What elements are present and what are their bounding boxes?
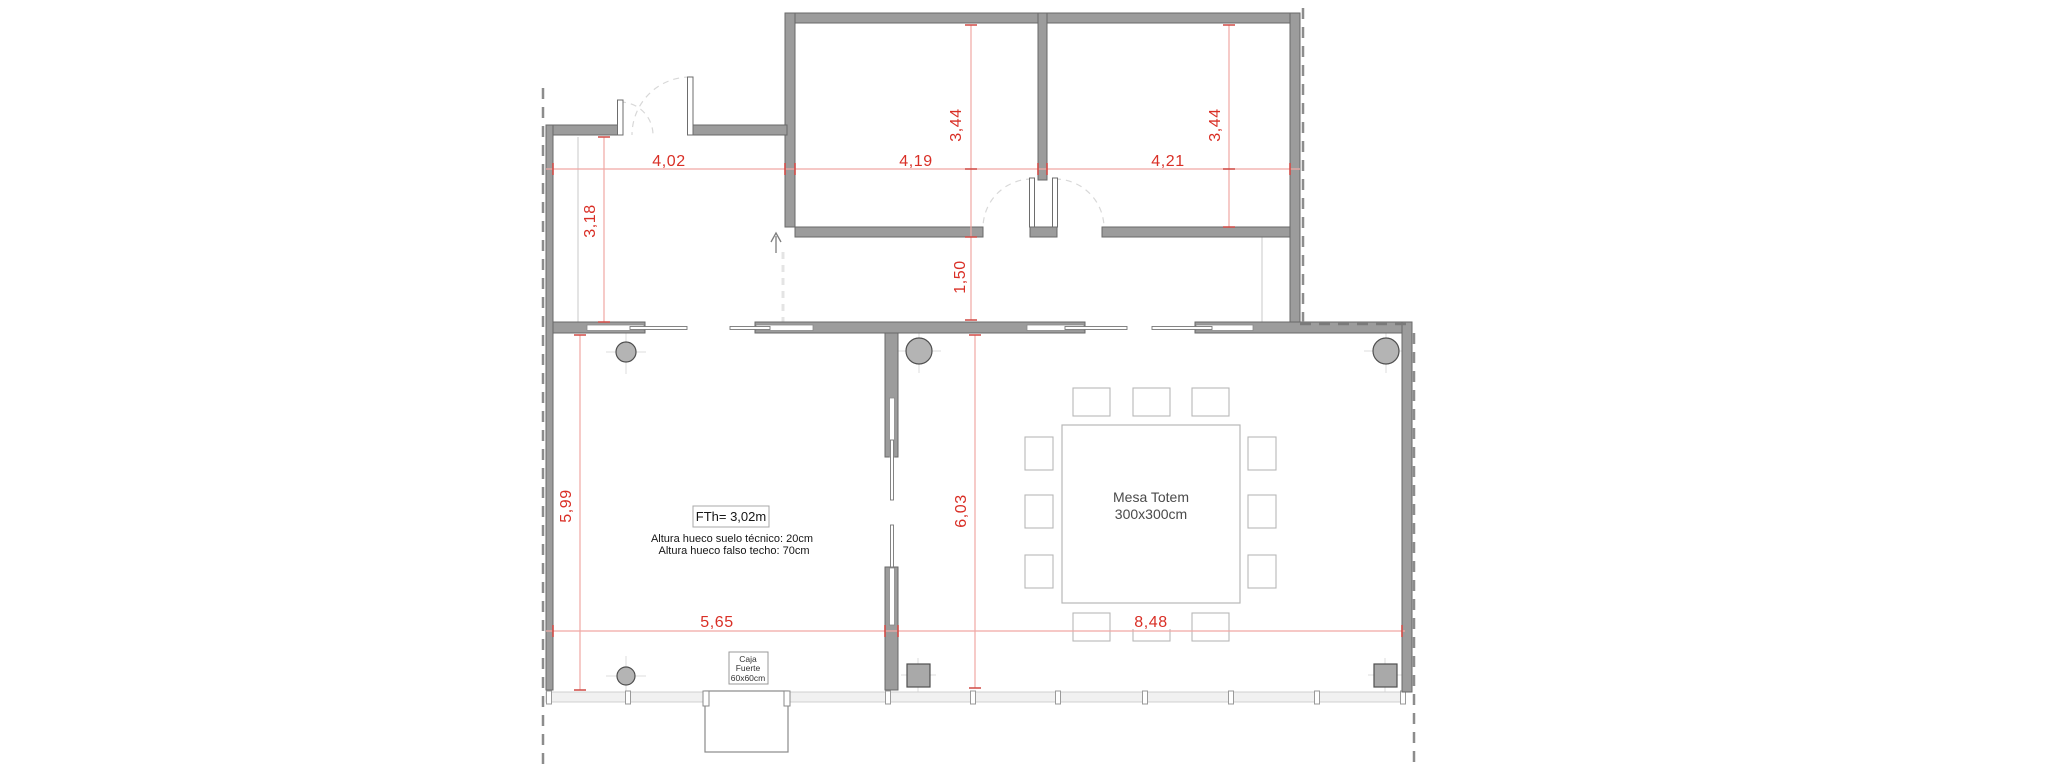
round-column [616,342,636,362]
table-label: Mesa Totem [1113,489,1189,505]
dim-565: 5,65 [700,614,734,631]
door-leaf [688,77,694,135]
door-swing-arc [632,77,690,135]
dim-402: 4,02 [652,153,686,170]
desk [705,691,788,752]
walls [546,13,1412,692]
wall-room-divider [1038,13,1047,180]
dimension-ticks [553,25,1402,690]
dim-150: 1,50 [952,260,969,294]
direction-arrow-icon [771,233,781,253]
chair [1248,437,1276,470]
chair [1248,555,1276,588]
dim-421: 4,21 [1151,153,1185,170]
desk-end [703,691,709,706]
door-swing-arc [983,179,1032,228]
fth-label: FTh= 3,02m [696,509,766,524]
height-annotations: FTh= 3,02m Altura hueco suelo técnico: 2… [651,506,813,557]
chair [1073,388,1110,416]
square-column [907,664,930,687]
ceiling-void-note: Altura hueco falso techo: 70cm [658,545,809,557]
door-post [1030,227,1057,237]
round-column [1373,338,1399,364]
dim-599: 5,99 [558,489,575,523]
chair [1248,495,1276,528]
floor-plan-drawing: Mesa Totem 300x300cm Caja Fuerte 60x60cm… [0,0,2048,768]
door-leaf [1030,178,1035,227]
dim-344-room1: 3,44 [948,108,965,142]
dim-344-room2: 3,44 [1207,108,1224,142]
safe-size-label: 60x60cm [731,673,766,683]
wall-entry-right [693,125,787,135]
desk-end [784,691,790,706]
dim-318: 3,18 [582,204,599,238]
wall-room2-bottom [1102,227,1290,237]
wall-room1-bottom [795,227,983,237]
dim-848: 8,48 [1134,614,1168,631]
door-swing-arc [1055,179,1104,228]
door-leaf [1053,178,1058,227]
floor-void-note: Altura hueco suelo técnico: 20cm [651,533,813,545]
glazed-facade [546,691,1406,704]
dim-419: 4,19 [899,153,933,170]
round-column [906,338,932,364]
site-boundary-dashed [543,8,1414,768]
round-column [617,667,635,685]
square-column [1374,664,1397,687]
wall-left-outer [546,125,553,690]
dimension-lines [546,25,1405,690]
chair [1073,613,1110,641]
wall-room1-left [785,13,795,227]
table-size-label: 300x300cm [1115,506,1187,522]
door-leaf [618,100,624,135]
wall-entry-left [546,125,618,135]
dim-603: 6,03 [953,494,970,528]
chair [1025,437,1053,470]
chair [1025,555,1053,588]
floor-plan-canvas: Mesa Totem 300x300cm Caja Fuerte 60x60cm… [0,0,2048,768]
chair [1133,388,1170,416]
door-swing-arc [620,102,653,135]
chair [1025,495,1053,528]
wall-room2-right [1290,13,1300,333]
chair [1192,613,1229,641]
meeting-area: Mesa Totem 300x300cm [1025,388,1276,641]
chair [1192,388,1229,416]
safe-and-desk: Caja Fuerte 60x60cm [703,652,790,752]
safe-label: Fuerte [736,663,761,673]
wall-right-outer [1402,322,1412,692]
